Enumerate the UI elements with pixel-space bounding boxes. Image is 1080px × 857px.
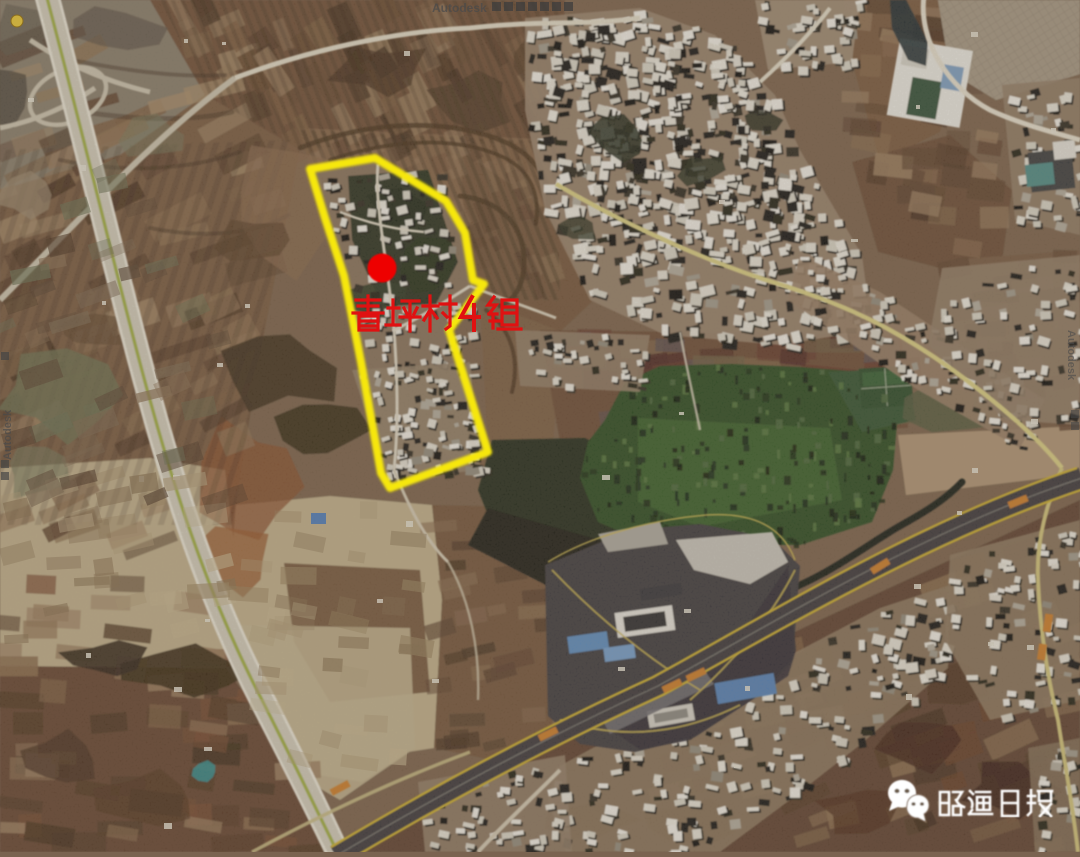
svg-text:Autodesk: Autodesk bbox=[2, 409, 14, 460]
svg-text:Autodesk: Autodesk bbox=[432, 1, 487, 15]
svg-text:Autodesk: Autodesk bbox=[1065, 330, 1077, 381]
